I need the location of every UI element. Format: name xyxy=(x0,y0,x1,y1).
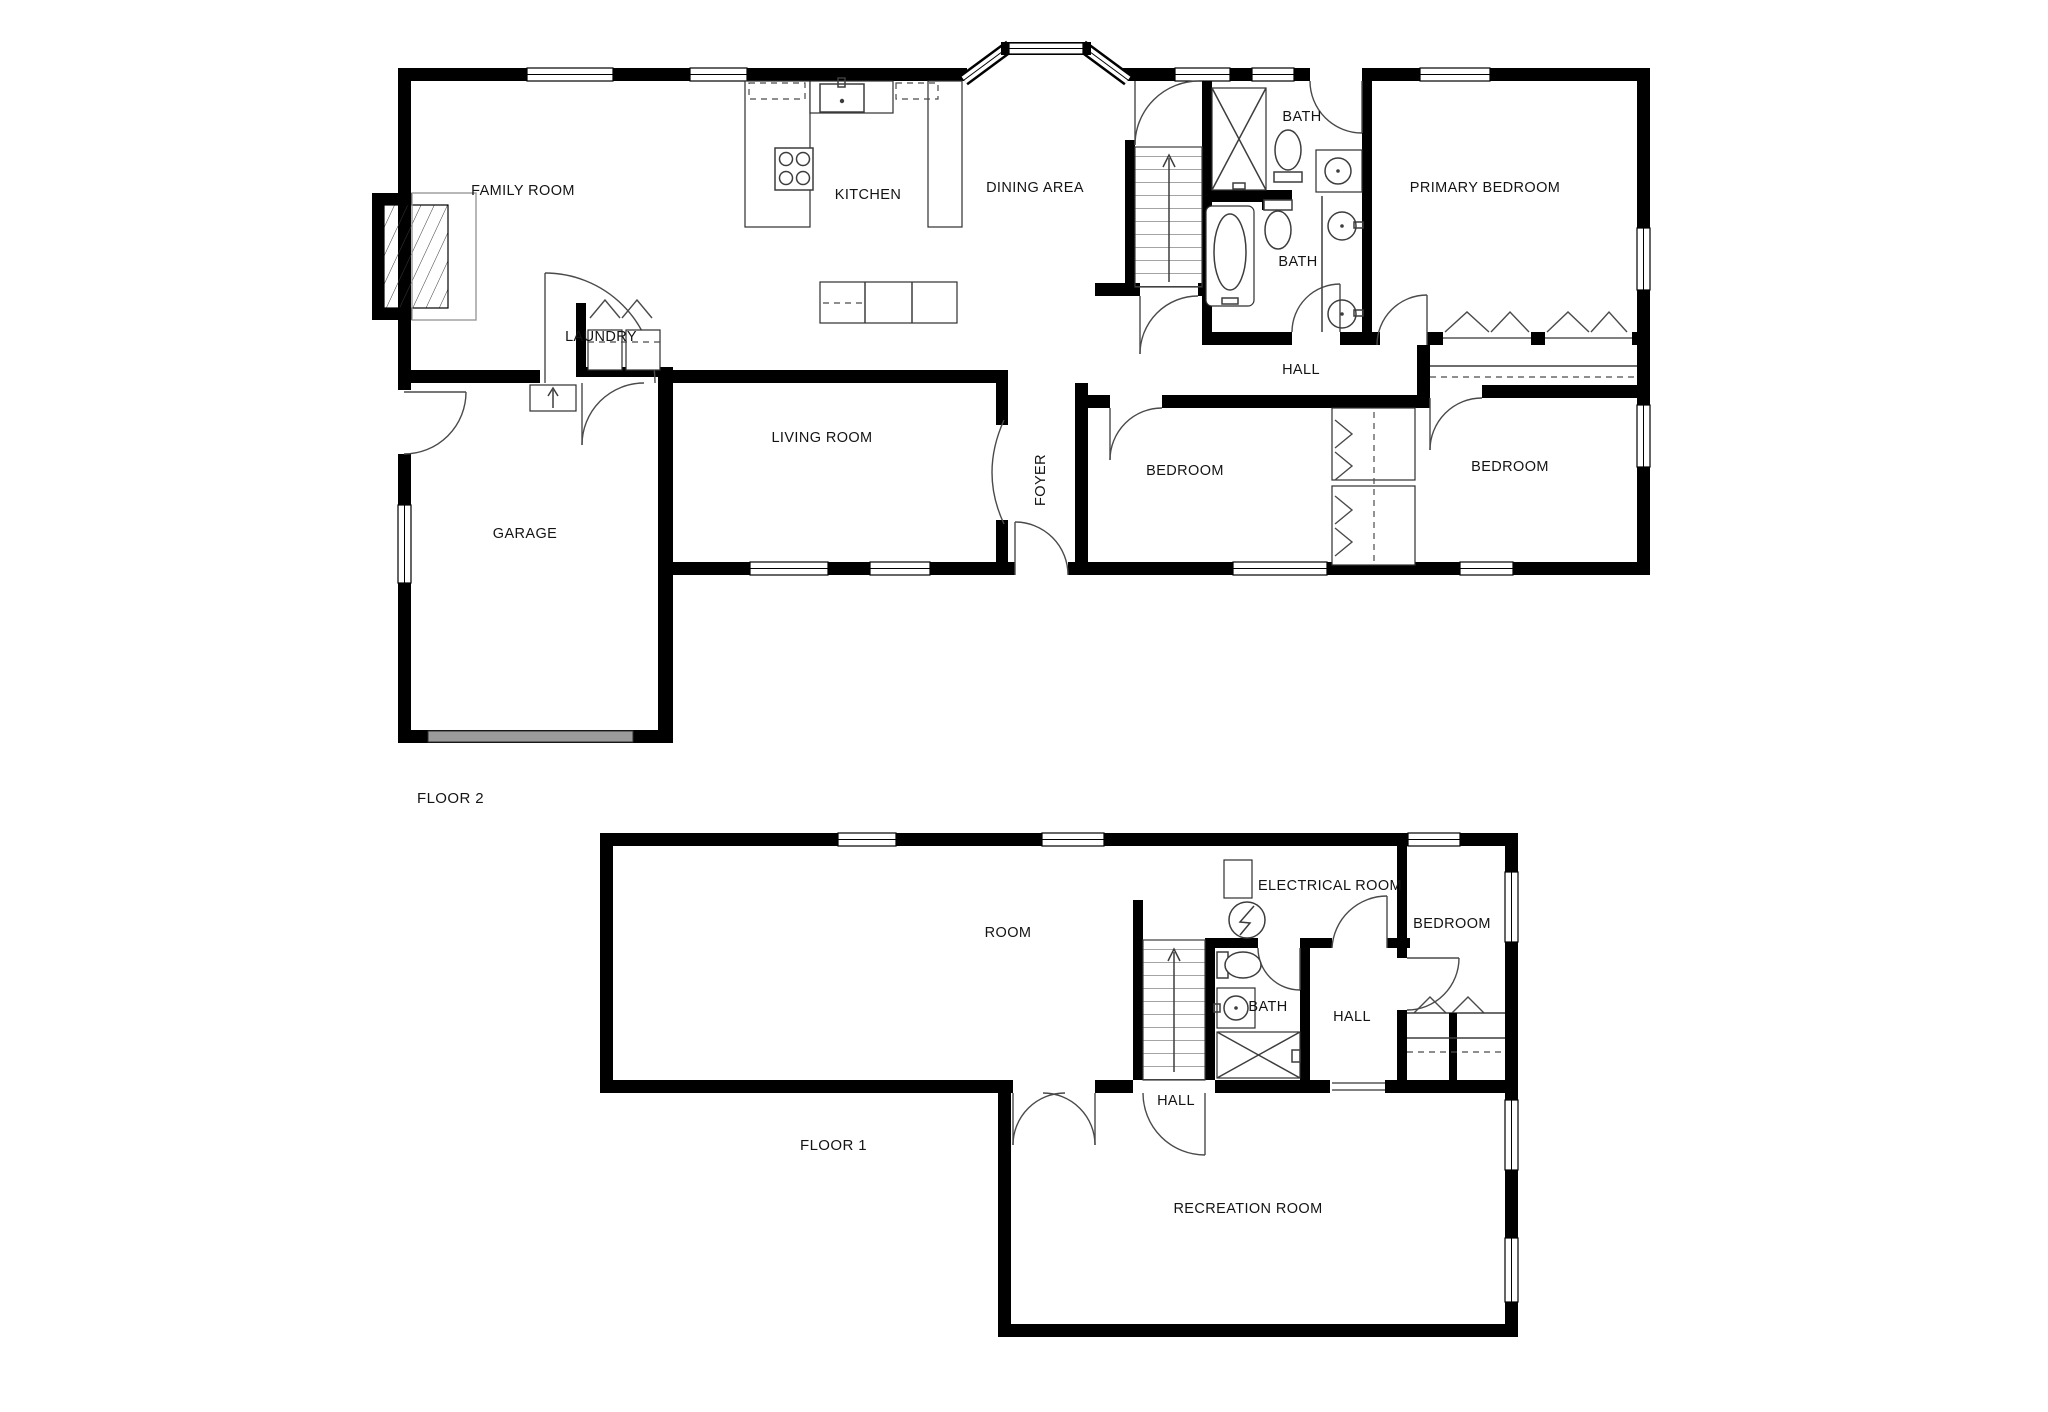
room-label-bath-bottom: BATH xyxy=(1278,254,1317,270)
room-label-living-room: LIVING ROOM xyxy=(771,430,872,446)
room-label-laundry: LAUNDRY xyxy=(565,329,637,345)
kitchen-lower-cabinets xyxy=(820,282,957,323)
room-label-bedroom-right: BEDROOM xyxy=(1471,459,1549,475)
room-label-hall-lower: HALL xyxy=(1157,1093,1195,1109)
toilet xyxy=(1274,130,1302,182)
floor2-walls xyxy=(398,68,1650,743)
entry-steps xyxy=(530,385,576,411)
bathtub xyxy=(1206,206,1254,306)
room-label-bedroom-floor1: BEDROOM xyxy=(1413,916,1491,932)
toilet xyxy=(1217,952,1261,978)
sink xyxy=(1316,150,1362,192)
floor-plan-canvas: FAMILY ROOM KITCHEN DINING AREA BATH PRI… xyxy=(0,0,2048,1412)
floor1-bedroom-closet xyxy=(1407,997,1505,1080)
room-label-bath-top: BATH xyxy=(1282,109,1321,125)
bath-top-fixtures xyxy=(1212,88,1362,192)
toilet xyxy=(1264,200,1292,249)
floor-plan-drawing: FAMILY ROOM KITCHEN DINING AREA BATH PRI… xyxy=(0,0,2048,1412)
electrical-panel xyxy=(1224,860,1265,938)
room-label-foyer: FOYER xyxy=(1033,454,1049,506)
room-label-electrical-room: ELECTRICAL ROOM xyxy=(1258,878,1402,894)
room-label-bedroom-left: BEDROOM xyxy=(1146,463,1224,479)
bay-window xyxy=(964,42,1128,80)
room-label-garage: GARAGE xyxy=(493,526,557,542)
double-sinks xyxy=(1322,196,1363,332)
room-label-hall-upper: HALL xyxy=(1333,1009,1371,1025)
floor1-caption: FLOOR 1 xyxy=(800,1137,867,1154)
room-label-primary-bedroom: PRIMARY BEDROOM xyxy=(1410,180,1561,196)
staircase-lower xyxy=(1143,940,1205,1080)
shower xyxy=(1217,1032,1300,1078)
bedroom-closets xyxy=(1332,408,1415,565)
room-label-kitchen: KITCHEN xyxy=(835,187,901,203)
floor1-bath-fixtures xyxy=(1214,952,1300,1078)
room-label-dining-area: DINING AREA xyxy=(986,180,1084,196)
stove xyxy=(775,148,813,190)
floor2-plan: FAMILY ROOM KITCHEN DINING AREA BATH PRI… xyxy=(372,42,1650,807)
staircase-upper xyxy=(1135,147,1202,287)
shower xyxy=(1212,88,1266,190)
garage-door xyxy=(428,731,633,742)
floor2-caption: FLOOR 2 xyxy=(417,790,484,807)
room-label-recreation-room: RECREATION ROOM xyxy=(1173,1201,1322,1217)
room-label-room: ROOM xyxy=(985,925,1032,941)
room-label-bath-floor1: BATH xyxy=(1248,999,1287,1015)
fireplace xyxy=(372,193,476,320)
floor1-plan: ROOM ELECTRICAL ROOM BATH HALL HALL BEDR… xyxy=(600,833,1518,1337)
electrical-icon xyxy=(1229,902,1265,938)
room-label-family-room: FAMILY ROOM xyxy=(471,183,575,199)
room-label-hall-floor2: HALL xyxy=(1282,362,1320,378)
